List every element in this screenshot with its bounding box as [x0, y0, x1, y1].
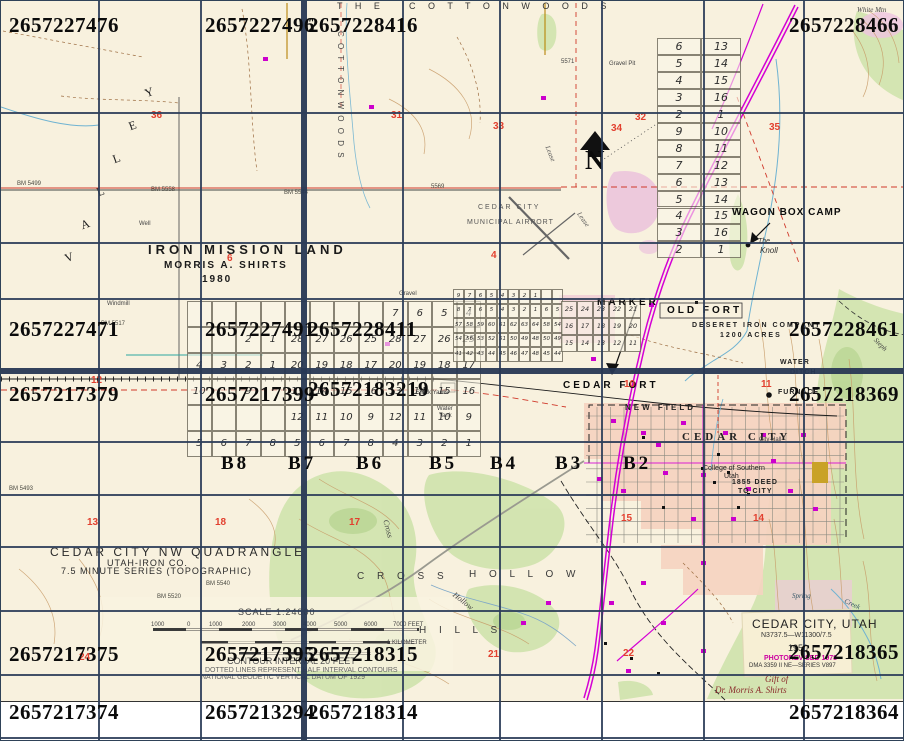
urban-building-magenta: [661, 621, 666, 625]
urban-building-magenta: [663, 471, 668, 475]
map-viewer-canvas[interactable]: 7654212827262528272625432120191817201918…: [0, 0, 904, 741]
building-black: [717, 453, 720, 456]
building-black: [657, 672, 660, 675]
urban-building-magenta: [641, 431, 646, 435]
urban-building-magenta: [385, 342, 390, 346]
map-bottom-margin: [1, 702, 904, 741]
urban-building-magenta: [691, 517, 696, 521]
urban-building-magenta: [521, 621, 526, 625]
furnace-dot: [766, 392, 772, 398]
urban-building-magenta: [731, 517, 736, 521]
urban-building-magenta: [649, 303, 654, 307]
urban-building-magenta: [701, 649, 706, 653]
urban-building-magenta: [761, 433, 766, 437]
building-black: [630, 657, 633, 660]
urban-building-magenta: [771, 459, 776, 463]
urban-building-magenta: [641, 581, 646, 585]
building-black: [695, 301, 698, 304]
urban-building-magenta: [746, 487, 751, 491]
urban-building-magenta: [263, 57, 268, 61]
scale-bars: [97, 597, 453, 671]
urban-building-magenta: [813, 507, 818, 511]
urban-building-magenta: [621, 489, 626, 493]
urban-building-magenta: [723, 431, 728, 435]
urban-building-magenta: [597, 477, 602, 481]
urban-building-magenta: [591, 357, 596, 361]
urban-building-magenta: [656, 443, 661, 447]
building-black: [747, 493, 750, 496]
wagon-box-camp-dot: [746, 243, 751, 248]
urban-building-magenta: [788, 489, 793, 493]
building-black: [713, 481, 716, 484]
land-parcel-gold: [812, 462, 828, 483]
quad-title-card: [742, 609, 852, 677]
building-black: [604, 642, 607, 645]
urban-building-magenta: [369, 105, 374, 109]
building-black: [642, 436, 645, 439]
urban-building-magenta: [609, 601, 614, 605]
building-black: [662, 506, 665, 509]
building-black: [737, 506, 740, 509]
urban-building-magenta: [546, 601, 551, 605]
urban-building-magenta: [701, 561, 706, 565]
urban-building-magenta: [626, 669, 631, 673]
urban-building-magenta: [611, 419, 616, 423]
urban-building-magenta: [801, 433, 806, 437]
urban-building-magenta: [541, 96, 546, 100]
building-black: [701, 467, 704, 470]
urban-building-magenta: [701, 473, 706, 477]
urban-building-magenta: [681, 421, 686, 425]
topo-map-image: [1, 1, 904, 741]
building-black: [727, 471, 730, 474]
